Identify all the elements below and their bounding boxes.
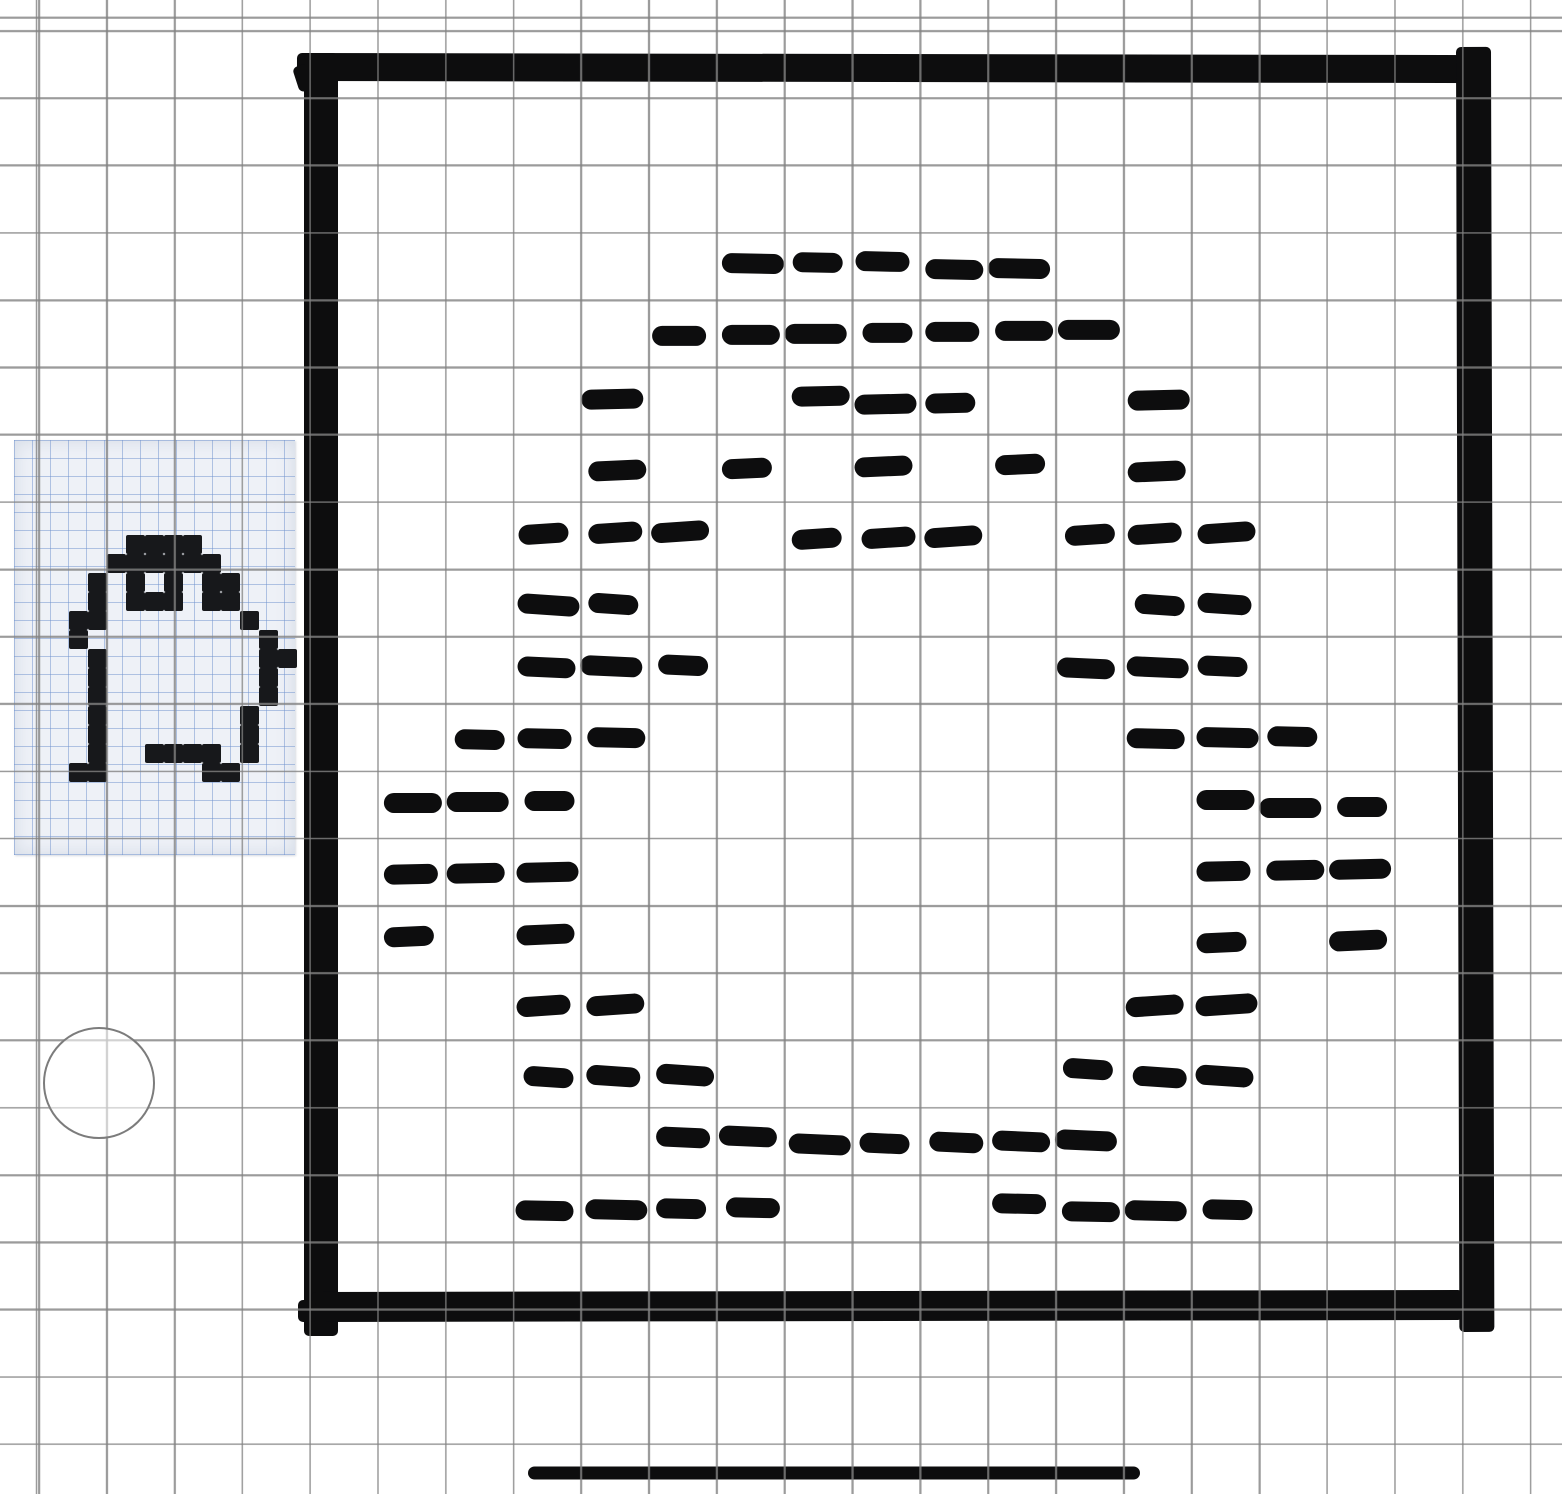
circle-shape-layer bbox=[0, 0, 1562, 1494]
drawn-circle-shape[interactable] bbox=[44, 1028, 154, 1138]
drawing-canvas[interactable] bbox=[0, 0, 1562, 1494]
